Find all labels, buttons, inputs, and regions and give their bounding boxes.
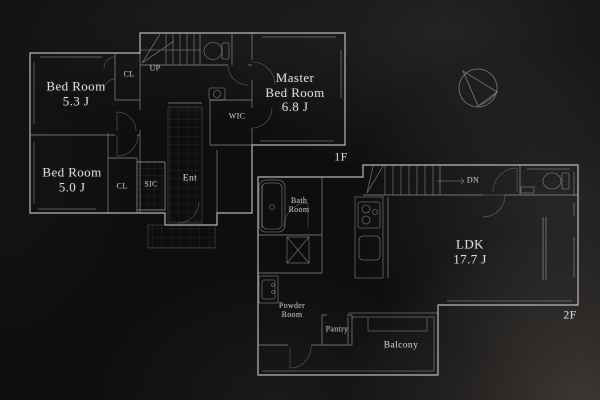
label-balcony: Balcony	[384, 341, 418, 352]
washbasin-icon-1f	[209, 88, 225, 100]
bathtub-icon	[259, 180, 285, 232]
north-arrow-icon	[459, 69, 497, 107]
label-closet-1: CL	[124, 71, 135, 80]
stove-icon	[358, 202, 380, 228]
floor1-plan	[30, 33, 345, 248]
room-area: 17.7 J	[453, 252, 486, 267]
washing-machine-icon	[287, 237, 309, 263]
washbasin-icon-2f	[259, 276, 278, 303]
room-label-bath: Bath Room	[289, 197, 310, 215]
label-entrance: Ent	[183, 174, 197, 185]
room-label-powder: Powder Room	[279, 302, 305, 320]
label-closet-2: CL	[117, 183, 128, 192]
room-label-ldk: LDK 17.7 J	[453, 237, 486, 266]
stairs-up-icon	[140, 33, 200, 65]
toilet-icon-2f	[521, 173, 569, 193]
floor1-label: 1F	[334, 150, 347, 163]
room-name: Master	[265, 71, 324, 86]
room-label-bedroom-50: Bed Room 5.0 J	[42, 165, 101, 194]
kitchen-counter	[355, 197, 383, 278]
room-area: 5.0 J	[42, 180, 101, 195]
stairs-down-icon	[367, 165, 464, 195]
label-wic: WIC	[229, 113, 245, 122]
room-name: Room	[279, 311, 305, 320]
room-name: Bed Room	[42, 165, 101, 180]
room-name: LDK	[453, 237, 486, 252]
floor2-label: 2F	[563, 308, 576, 321]
porch-tile-floor	[148, 225, 215, 248]
room-name: Bed Room	[46, 79, 105, 94]
room-name: Bed Room	[265, 86, 324, 101]
room-name: Room	[289, 206, 310, 215]
sink-icon	[359, 236, 380, 260]
label-sic: SIC	[144, 181, 157, 190]
hall-tile-floor	[168, 107, 202, 223]
label-stairs-up: UP	[150, 65, 161, 74]
label-pantry: Pantry	[326, 326, 349, 335]
toilet-icon-1f	[204, 43, 229, 60]
door-arcs-2f	[284, 168, 517, 368]
room-area: 5.3 J	[46, 94, 105, 109]
room-label-master-bedroom: Master Bed Room 6.8 J	[265, 71, 324, 115]
room-label-bedroom-53: Bed Room 5.3 J	[46, 79, 105, 108]
label-stairs-down: DN	[467, 177, 479, 186]
room-area: 6.8 J	[265, 100, 324, 115]
floor-plan-screenshot: Bed Room 5.3 J CL UP Master Bed Room 6.8…	[0, 0, 600, 400]
